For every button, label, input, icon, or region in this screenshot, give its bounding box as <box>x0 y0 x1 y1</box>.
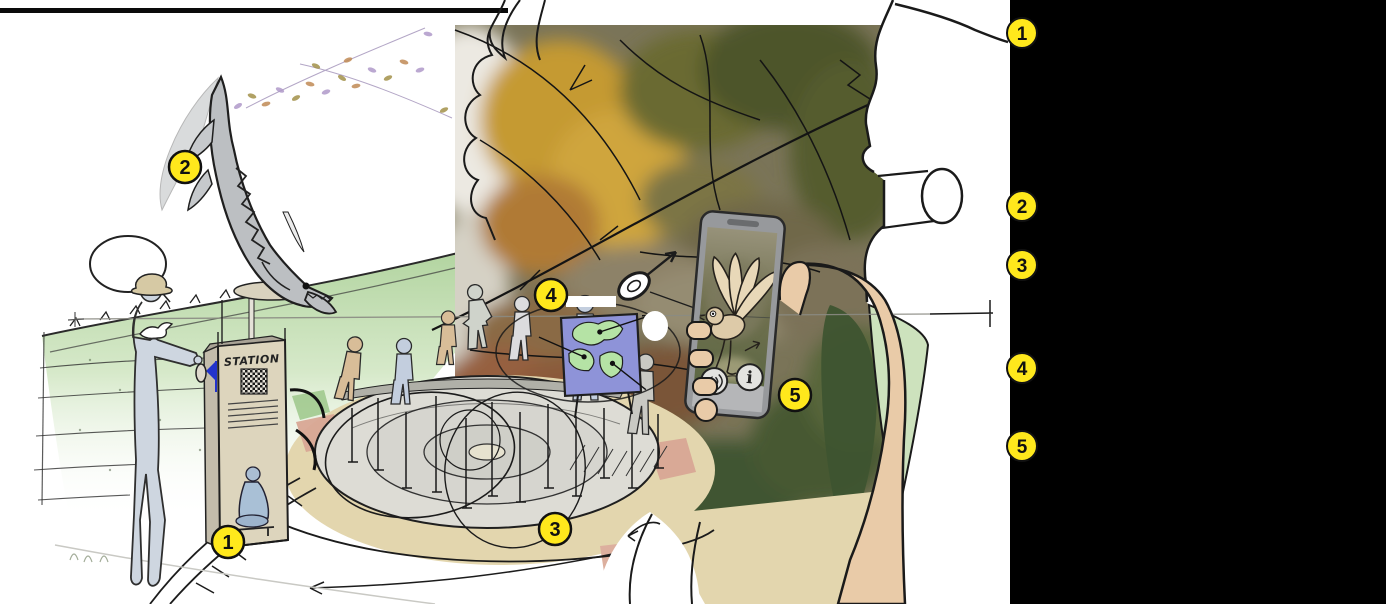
svg-text:2: 2 <box>179 157 190 179</box>
scene-marker-3: 3 <box>539 513 571 545</box>
legend-item-4: 4 <box>1007 353 1037 383</box>
legend-sidebar: 1 2 3 4 5 <box>1007 0 1386 604</box>
crank-wheel <box>196 364 206 382</box>
svg-text:1: 1 <box>222 532 233 554</box>
qr-code <box>241 369 267 394</box>
scene-marker-2: 2 <box>169 151 201 183</box>
svg-text:5: 5 <box>1017 437 1028 458</box>
top-border-line <box>0 8 508 13</box>
scene-marker-4: 4 <box>535 279 567 311</box>
svg-text:4: 4 <box>1017 359 1028 380</box>
scene-marker-1: 1 <box>212 526 244 558</box>
svg-text:1: 1 <box>1017 24 1028 45</box>
sidebar-background <box>1010 0 1386 604</box>
legend-item-3: 3 <box>1007 250 1037 280</box>
svg-text:3: 3 <box>549 519 560 541</box>
concept-sketch-slide: STATION <box>0 0 1386 604</box>
scene-marker-5: 5 <box>779 379 811 411</box>
legend-item-2: 2 <box>1007 191 1037 221</box>
concept-sketch-illustration: STATION <box>0 0 1386 604</box>
svg-text:4: 4 <box>545 285 557 307</box>
legend-item-5: 5 <box>1007 431 1037 461</box>
legend-item-1: 1 <box>1007 18 1037 48</box>
panel-blank-label <box>566 296 616 307</box>
svg-text:5: 5 <box>789 385 800 407</box>
info-button[interactable]: i <box>736 363 764 391</box>
speech-blob <box>642 311 668 341</box>
svg-text:2: 2 <box>1017 197 1028 218</box>
svg-text:3: 3 <box>1017 256 1028 277</box>
